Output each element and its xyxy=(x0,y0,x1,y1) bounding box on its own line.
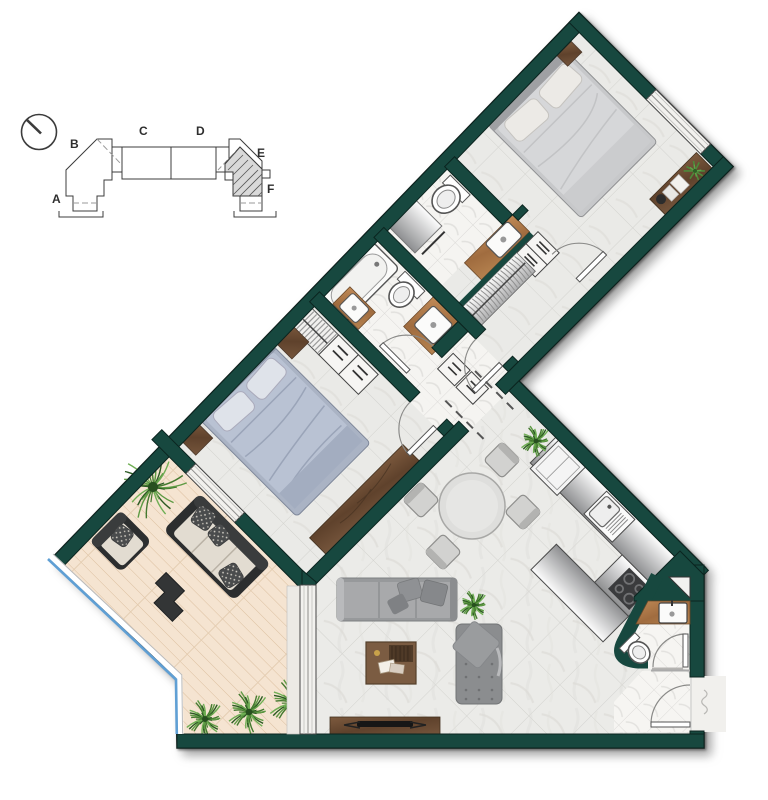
svg-text:C: C xyxy=(139,124,148,138)
svg-text:B: B xyxy=(70,137,79,151)
svg-text:A: A xyxy=(52,192,61,206)
svg-text:D: D xyxy=(196,124,205,138)
svg-text:E: E xyxy=(257,146,265,160)
svg-text:F: F xyxy=(267,182,274,196)
